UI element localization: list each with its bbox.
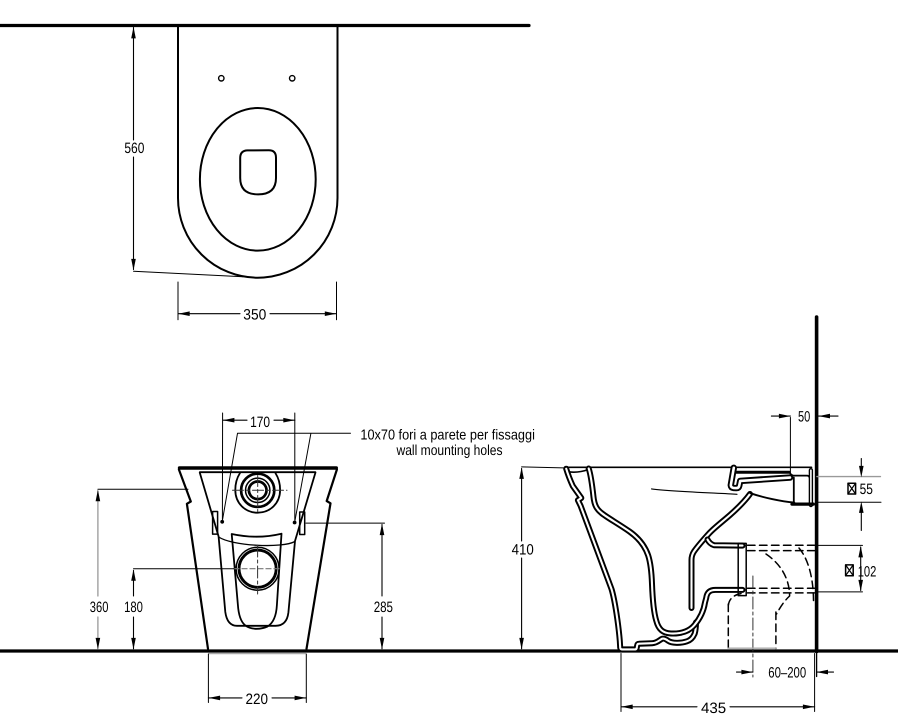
svg-text:wall mounting holes: wall mounting holes: [396, 443, 503, 459]
svg-text:102: 102: [858, 563, 877, 580]
svg-text:10x70 fori a parete per fissag: 10x70 fori a parete per fissaggi: [360, 428, 535, 444]
svg-text:560: 560: [124, 140, 144, 157]
svg-text:50: 50: [798, 408, 810, 425]
svg-text:180: 180: [124, 599, 143, 616]
svg-text:55: 55: [860, 481, 873, 498]
svg-text:220: 220: [246, 691, 269, 708]
svg-text:435: 435: [701, 700, 726, 717]
svg-text:170: 170: [250, 414, 270, 431]
svg-text:410: 410: [512, 541, 534, 558]
svg-text:60–200: 60–200: [768, 665, 806, 682]
svg-text:285: 285: [374, 599, 393, 616]
svg-text:360: 360: [90, 599, 109, 616]
svg-text:350: 350: [243, 307, 266, 324]
